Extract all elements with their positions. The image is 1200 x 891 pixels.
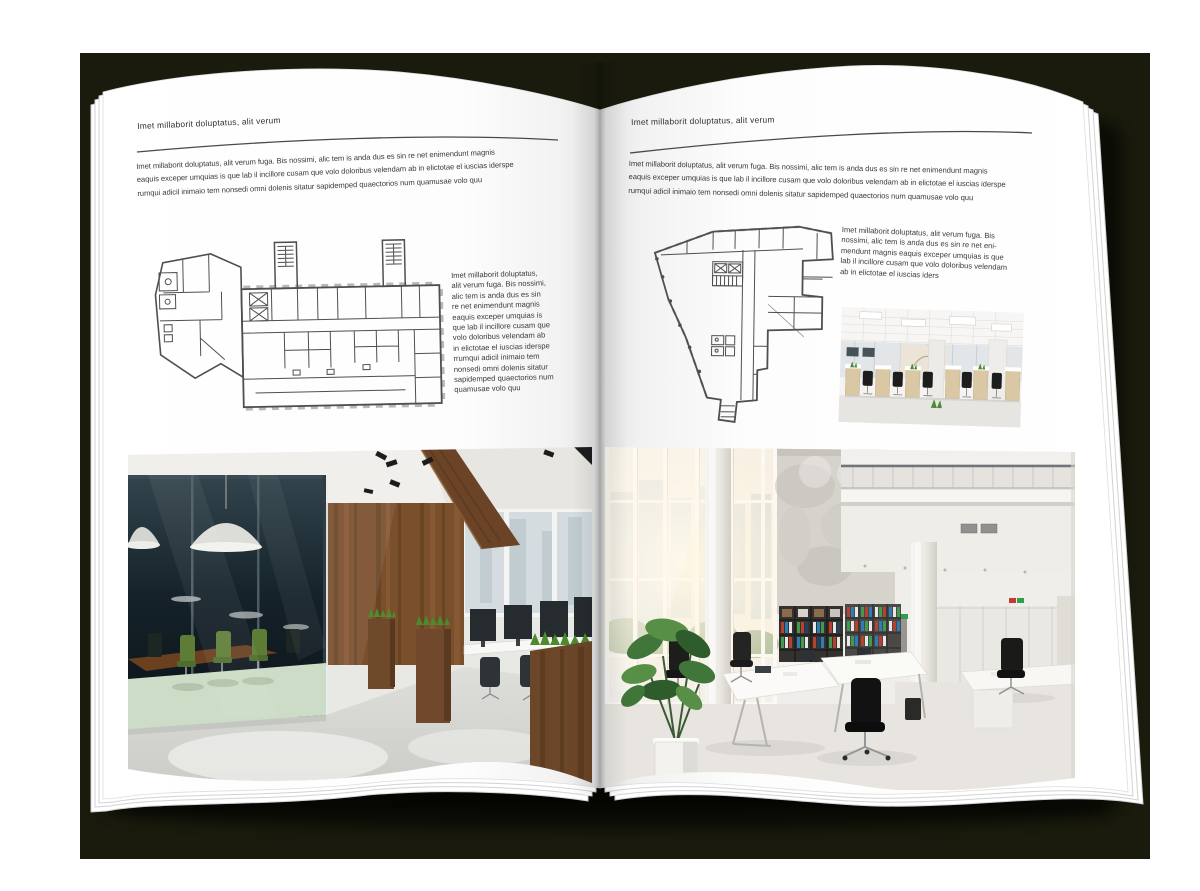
floorplan-left-icon: [150, 223, 450, 417]
left-page-side-text: Imet millaborit doluptatus,alit verum fu…: [451, 268, 554, 396]
floorplan-right-icon: [645, 215, 838, 426]
right-page-side-text: Imet millaborit doluptatus, alit verum f…: [840, 225, 1009, 284]
mockup-canvas: { "artwork": { "background_color": "#fff…: [0, 0, 1200, 891]
loft-office-photo: [128, 447, 592, 787]
small-office-photo: [838, 307, 1024, 428]
waste-bin-icon: [905, 698, 921, 720]
column-icon: [705, 446, 731, 748]
mezzanine: [841, 446, 1075, 574]
fire-sign-icon: [1009, 598, 1016, 603]
right-page-intro: Imet millaborit doluptatus, alit verum f…: [628, 157, 1006, 205]
bright-office-photo: [605, 446, 1075, 790]
